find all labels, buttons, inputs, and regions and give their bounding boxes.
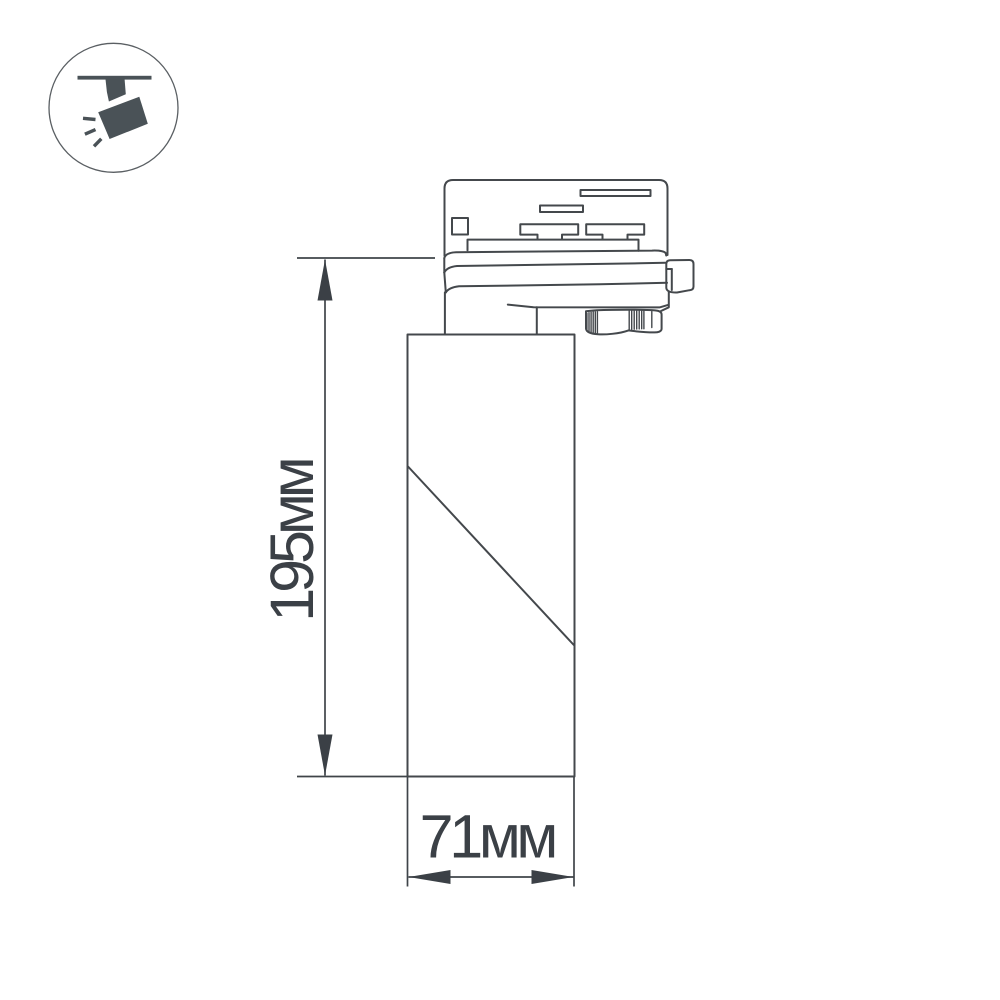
svg-text:195мм: 195мм [258,456,326,622]
svg-text:71мм: 71мм [420,803,559,871]
